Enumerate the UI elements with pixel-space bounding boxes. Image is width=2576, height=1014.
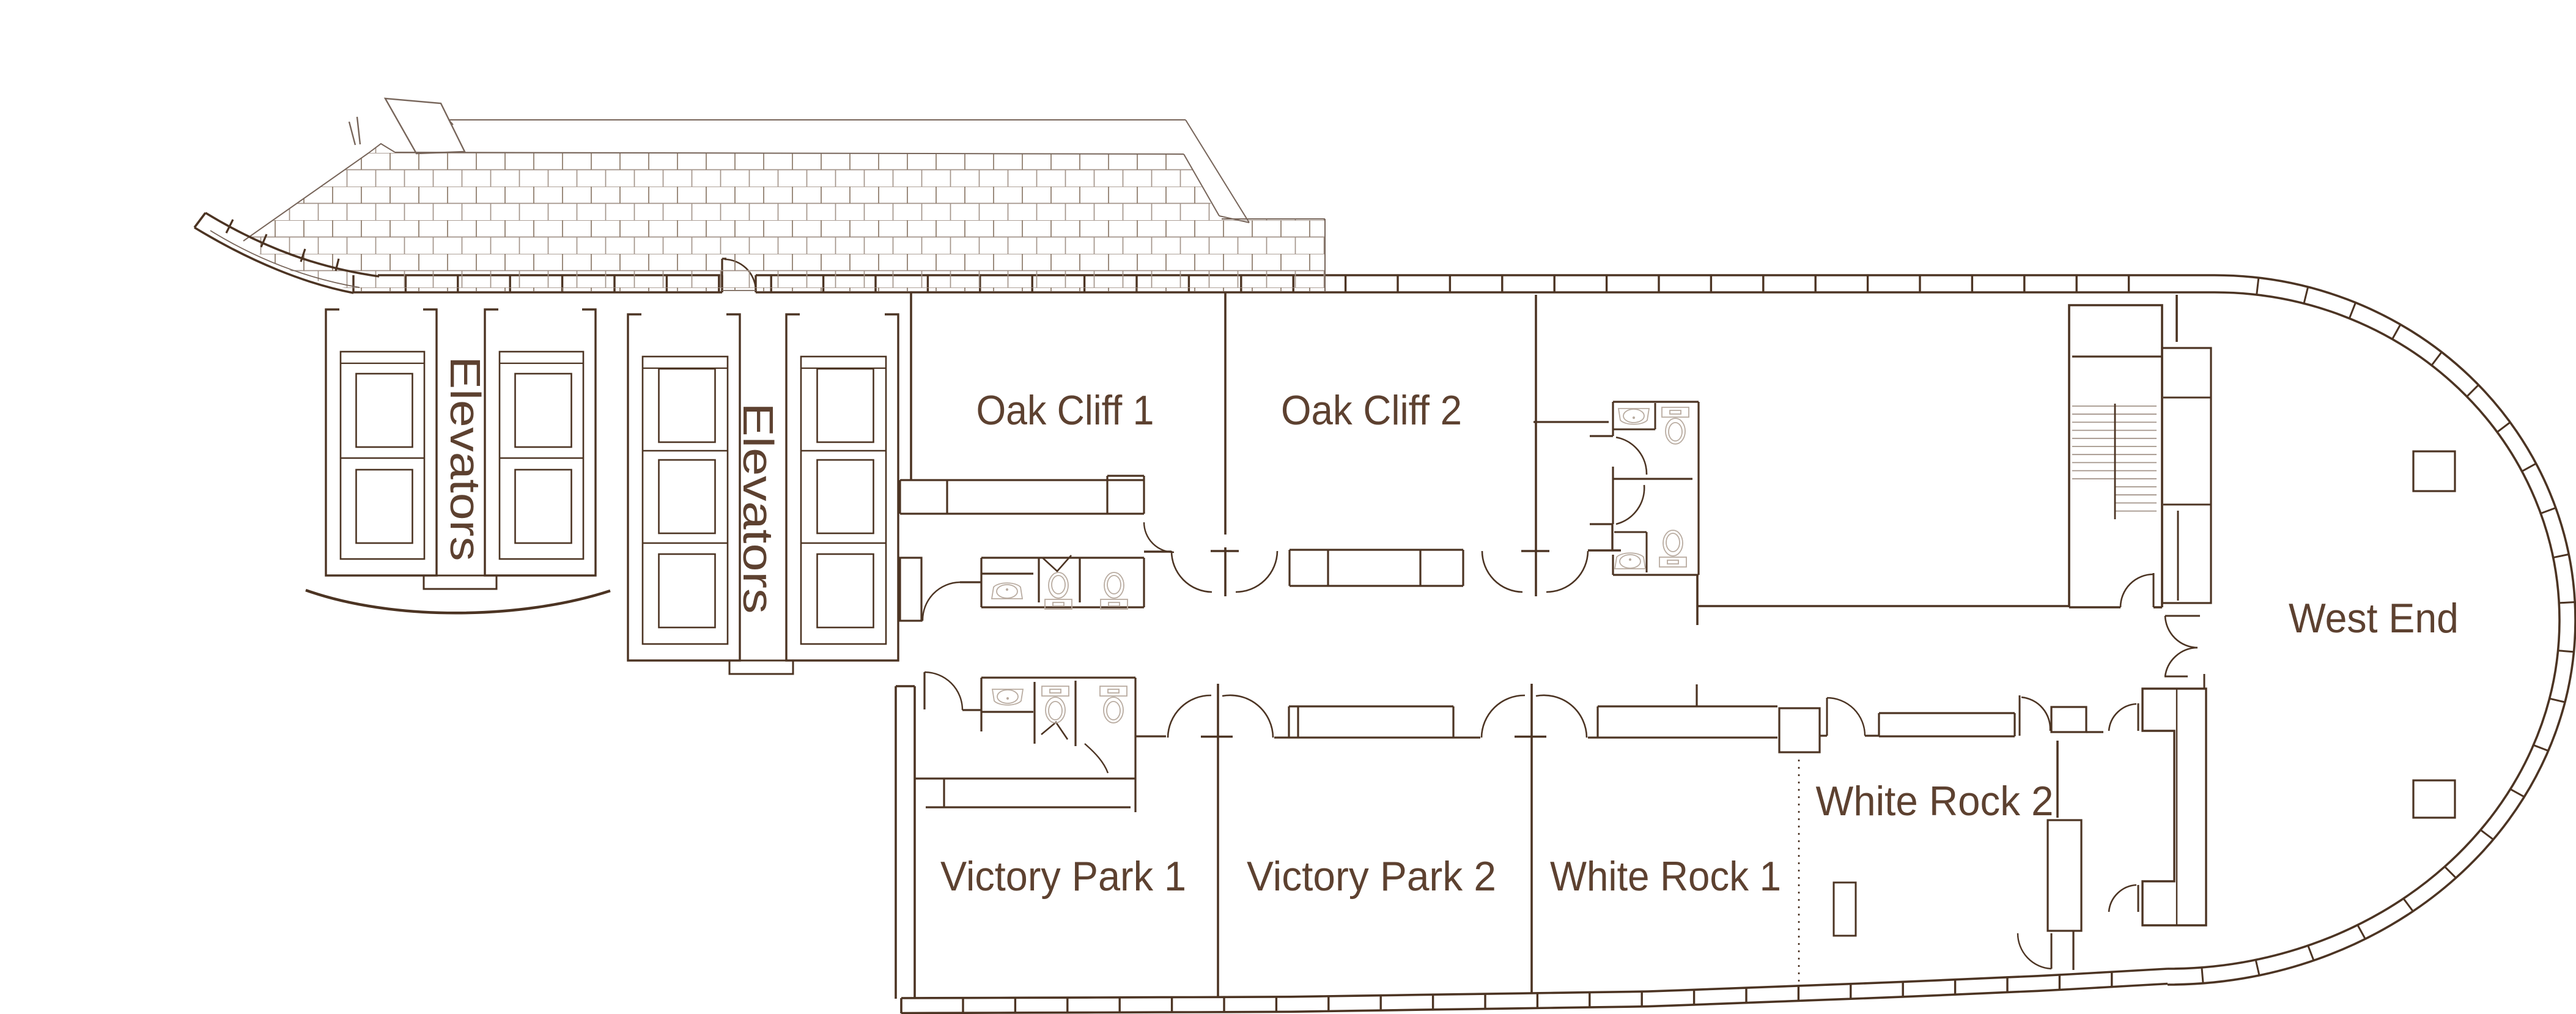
svg-text:Elevators: Elevators: [734, 403, 782, 614]
svg-text:Oak Cliff 1: Oak Cliff 1: [976, 387, 1154, 434]
svg-text:White Rock 2: White Rock 2: [1816, 778, 2054, 824]
svg-text:White Rock 1: White Rock 1: [1550, 853, 1781, 900]
svg-text:West End: West End: [2289, 595, 2459, 642]
svg-text:Victory Park 2: Victory Park 2: [1247, 853, 1496, 900]
svg-text:Elevators: Elevators: [441, 357, 489, 561]
svg-text:Oak Cliff 2: Oak Cliff 2: [1281, 387, 1462, 434]
svg-text:Victory Park 1: Victory Park 1: [940, 853, 1186, 900]
